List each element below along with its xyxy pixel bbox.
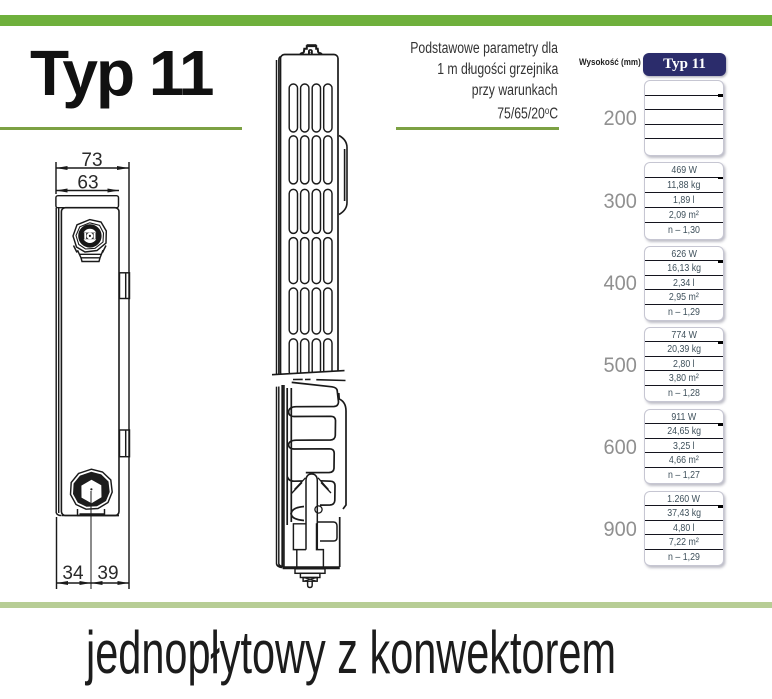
svg-text:34: 34 bbox=[62, 563, 84, 584]
svg-text:39: 39 bbox=[97, 563, 118, 584]
